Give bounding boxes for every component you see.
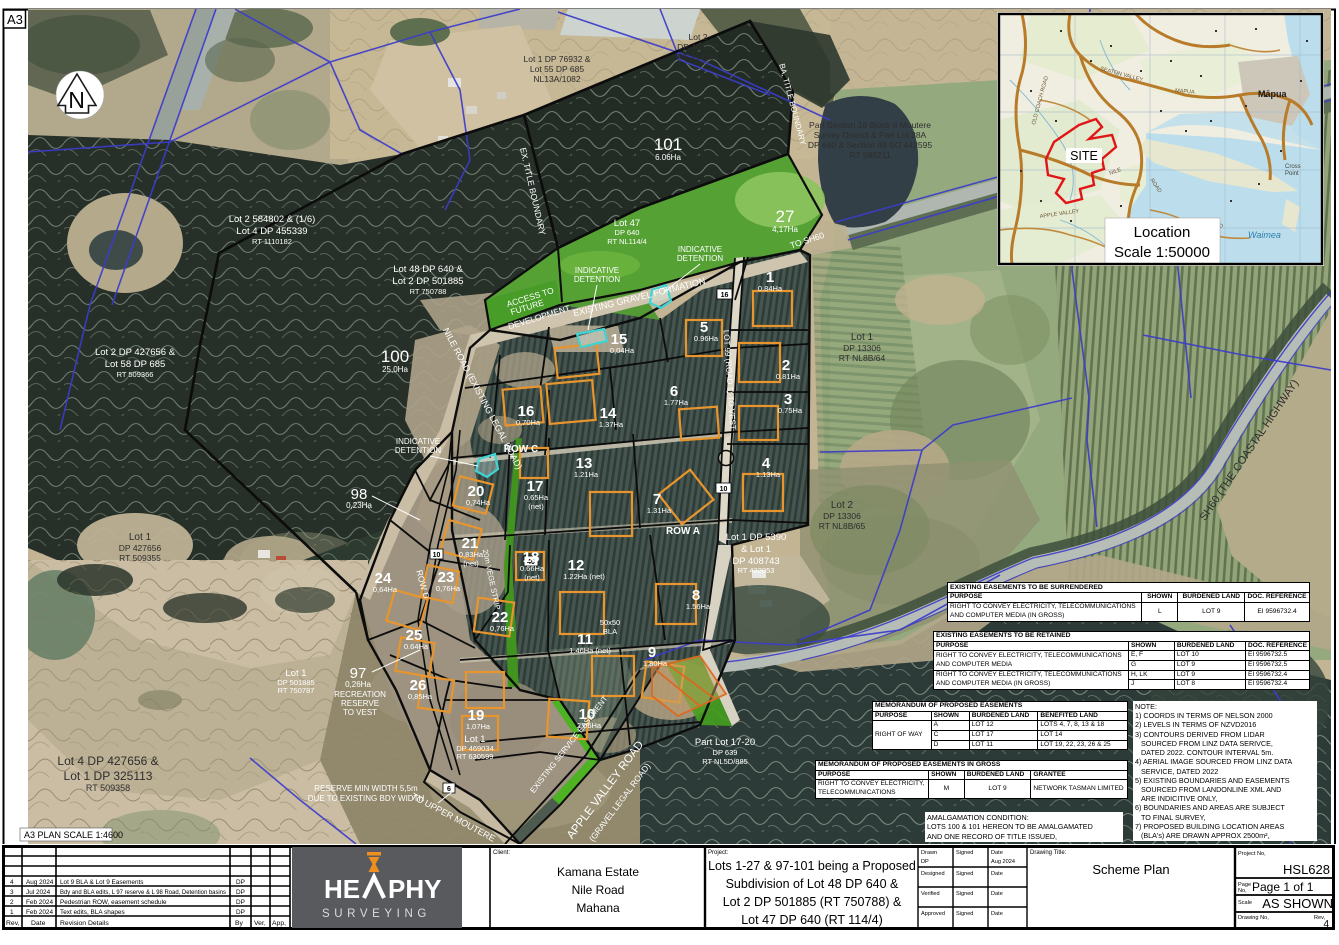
svg-text:RT NL5D/885: RT NL5D/885 (702, 757, 748, 766)
svg-text:2: 2 (10, 899, 14, 906)
svg-text:Approved: Approved (921, 911, 945, 917)
svg-text:Signed: Signed (956, 871, 973, 877)
svg-text:Scheme Plan: Scheme Plan (1092, 862, 1169, 877)
svg-text:RT 509366: RT 509366 (117, 370, 154, 379)
svg-text:RT 588211: RT 588211 (849, 150, 890, 160)
svg-text:6: 6 (447, 786, 451, 793)
svg-text:Text edits, BLA shapes: Text edits, BLA shapes (60, 909, 125, 916)
svg-text:Part Lot 17-20: Part Lot 17-20 (695, 737, 755, 748)
svg-text:RT 509358: RT 509358 (86, 783, 130, 793)
svg-text:0,26Ha: 0,26Ha (345, 680, 371, 689)
svg-text:SURVEYING: SURVEYING (322, 908, 431, 920)
svg-text:Aug 2024: Aug 2024 (991, 859, 1015, 865)
svg-text:By: By (235, 920, 244, 927)
svg-text:DP: DP (236, 889, 245, 896)
svg-text:Lot 4 DP 455339: Lot 4 DP 455339 (236, 226, 307, 237)
svg-text:10: 10 (720, 486, 728, 493)
svg-text:PHY: PHY (388, 874, 441, 904)
svg-text:1.46Ha (net): 1.46Ha (net) (569, 646, 611, 655)
svg-text:1,07Ha: 1,07Ha (466, 722, 491, 731)
svg-text:Lot 2 DP 427656 &: Lot 2 DP 427656 & (95, 347, 176, 358)
svg-text:6.06Ha: 6.06Ha (655, 153, 681, 162)
svg-text:Mahana: Mahana (576, 901, 620, 915)
svg-text:DP 13306: DP 13306 (843, 343, 881, 353)
svg-text:Designed: Designed (921, 871, 945, 877)
svg-text:Subdivision of Lot 48 DP 640 &: Subdivision of Lot 48 DP 640 & (726, 877, 899, 891)
svg-text:In: In (1330, 230, 1338, 240)
svg-text:1.37Ha: 1.37Ha (599, 420, 624, 429)
svg-text:Signed: Signed (956, 911, 973, 917)
svg-text:Verified: Verified (921, 891, 940, 897)
svg-text:0,85Ha: 0,85Ha (408, 692, 433, 701)
svg-text:SITE: SITE (1070, 149, 1098, 163)
svg-text:RT 432053: RT 432053 (738, 566, 775, 575)
svg-text:RESERVE MIN WIDTH 5,5m: RESERVE MIN WIDTH 5,5m (314, 784, 418, 793)
svg-text:0,04Ha: 0,04Ha (610, 346, 635, 355)
svg-text:100: 100 (381, 347, 409, 366)
svg-text:27: 27 (776, 207, 795, 226)
svg-text:ROW C: ROW C (504, 444, 538, 455)
svg-text:DETENTION: DETENTION (677, 254, 723, 263)
svg-text:HE: HE (324, 874, 360, 904)
svg-text:4: 4 (10, 879, 14, 886)
svg-text:RT 630599: RT 630599 (457, 752, 494, 761)
svg-text:Project:: Project: (708, 850, 729, 856)
svg-text:Lot 4 DP 427656 &: Lot 4 DP 427656 & (57, 754, 158, 768)
svg-text:Feb 2024: Feb 2024 (26, 909, 53, 916)
svg-text:Project No,: Project No, (1238, 851, 1266, 857)
svg-text:1.22Ha (net): 1.22Ha (net) (563, 572, 605, 581)
svg-text:Date: Date (31, 920, 46, 927)
svg-text:0,76Ha: 0,76Ha (436, 584, 461, 593)
svg-text:Waimea: Waimea (1248, 230, 1281, 240)
svg-text:& Lot 1: & Lot 1 (741, 544, 771, 555)
svg-text:Part Section 16 Block II Moute: Part Section 16 Block II Moutere (809, 120, 931, 130)
svg-text:DP 427656: DP 427656 (119, 543, 162, 553)
svg-text:Bdy and BLA edits, L 97 reserv: Bdy and BLA edits, L 97 reserve & L 98 R… (60, 889, 226, 896)
svg-text:Aug 2024: Aug 2024 (26, 879, 54, 886)
svg-text:Signed: Signed (956, 891, 973, 897)
svg-text:Lot 9 BLA & Lot 9 Easements: Lot 9 BLA & Lot 9 Easements (60, 879, 144, 886)
svg-text:1.31Ha: 1.31Ha (647, 506, 672, 515)
svg-text:No,: No, (1238, 888, 1247, 894)
svg-text:0.66Ha: 0.66Ha (520, 564, 545, 573)
svg-text:Rev,: Rev, (6, 920, 20, 927)
svg-text:0,70Ha: 0,70Ha (516, 418, 541, 427)
svg-text:DP 404110: DP 404110 (677, 42, 719, 52)
svg-text:16: 16 (721, 292, 729, 299)
svg-text:INDICATIVE: INDICATIVE (396, 437, 440, 446)
svg-text:Lot 2 DP 501885 (RT 750788) &: Lot 2 DP 501885 (RT 750788) & (723, 895, 902, 909)
svg-text:Lot 58 DP 685: Lot 58 DP 685 (105, 359, 166, 370)
svg-text:1: 1 (10, 909, 14, 916)
svg-text:DP 13306: DP 13306 (823, 511, 861, 521)
svg-text:0,76Ha: 0,76Ha (490, 624, 515, 633)
svg-text:0.75Ha: 0.75Ha (778, 406, 803, 415)
svg-text:RT NL114/4: RT NL114/4 (607, 237, 647, 246)
svg-text:1.13Ha: 1.13Ha (756, 470, 781, 479)
svg-text:Revision Details: Revision Details (60, 920, 109, 927)
svg-text:1.77Ha: 1.77Ha (664, 398, 689, 407)
svg-text:Nile Road: Nile Road (572, 883, 625, 897)
svg-text:Location: Location (1134, 224, 1191, 241)
svg-text:RT 1110182: RT 1110182 (252, 237, 292, 246)
svg-text:NL13A/1082: NL13A/1082 (533, 74, 581, 84)
svg-text:RT 750788: RT 750788 (410, 287, 447, 296)
svg-text:0.96Ha: 0.96Ha (694, 334, 719, 343)
svg-text:Jul 2024: Jul 2024 (26, 889, 51, 896)
svg-text:Lot 47 DP 640 (RT 114/4): Lot 47 DP 640 (RT 114/4) (741, 913, 883, 927)
svg-text:Lot 2: Lot 2 (831, 500, 854, 511)
svg-text:RECREATION: RECREATION (334, 690, 386, 699)
svg-text:RT 414184: RT 414184 (677, 52, 719, 62)
svg-text:Survey District & Part Lot 38A: Survey District & Part Lot 38A (814, 130, 927, 140)
svg-text:A3: A3 (7, 12, 23, 27)
svg-text:N: N (68, 87, 85, 113)
svg-text:Date: Date (991, 911, 1003, 917)
svg-text:0,64Ha: 0,64Ha (373, 585, 398, 594)
svg-text:DP 640 & Section 49 SO 442595: DP 640 & Section 49 SO 442595 (808, 140, 932, 150)
svg-text:Lot 1 DP 5390: Lot 1 DP 5390 (726, 532, 787, 543)
svg-text:Ver,: Ver, (254, 920, 266, 927)
svg-text:DP: DP (236, 909, 245, 916)
svg-text:Date: Date (991, 891, 1003, 897)
svg-text:0.84Ha: 0.84Ha (758, 284, 783, 293)
svg-text:0,74Ha: 0,74Ha (466, 498, 491, 507)
svg-text:Lot 55 DP 685: Lot 55 DP 685 (530, 64, 584, 74)
svg-text:0.65Ha: 0.65Ha (524, 493, 549, 502)
svg-text:Lot 48 DP 640 &: Lot 48 DP 640 & (393, 264, 463, 275)
svg-text:TO VEST: TO VEST (343, 708, 377, 717)
svg-text:A3 PLAN SCALE 1:4600: A3 PLAN SCALE 1:4600 (24, 830, 123, 840)
svg-text:0.81Ha: 0.81Ha (776, 372, 801, 381)
svg-text:(net): (net) (524, 573, 540, 582)
svg-text:Lot 1 DP 76932 &: Lot 1 DP 76932 & (524, 54, 591, 64)
svg-text:App,: App, (272, 920, 286, 927)
svg-text:Scale 1:50000: Scale 1:50000 (1114, 244, 1210, 261)
svg-text:4,17Ha: 4,17Ha (772, 225, 798, 234)
svg-text:DP: DP (236, 899, 245, 906)
svg-text:Point: Point (1285, 171, 1299, 177)
svg-text:BLA: BLA (603, 627, 617, 636)
svg-text:Feb 2024: Feb 2024 (26, 899, 53, 906)
svg-text:RT 509355: RT 509355 (119, 553, 161, 563)
svg-text:25,0Ha: 25,0Ha (382, 365, 408, 374)
svg-text:AS SHOWN: AS SHOWN (1262, 896, 1333, 911)
svg-text:(net): (net) (463, 559, 479, 568)
svg-text:(net): (net) (528, 502, 544, 511)
svg-text:Lots 1-27 & 97-101 being a Pro: Lots 1-27 & 97-101 being a Proposed (708, 859, 916, 873)
svg-text:Lot 2 584802 & (1/6): Lot 2 584802 & (1/6) (229, 214, 316, 225)
svg-text:DUE TO EXISTING BDY WIDTH: DUE TO EXISTING BDY WIDTH (308, 794, 425, 803)
svg-text:INDICATIVE: INDICATIVE (575, 266, 619, 275)
svg-text:Drawing No,: Drawing No, (1238, 915, 1269, 921)
svg-text:Date: Date (991, 871, 1003, 877)
svg-text:3: 3 (10, 889, 14, 896)
svg-text:Lot 1: Lot 1 (129, 532, 152, 543)
svg-text:Drawing Title:: Drawing Title: (1030, 850, 1067, 856)
svg-text:DETENTION: DETENTION (395, 446, 441, 455)
svg-text:Lot 1 DP 325113: Lot 1 DP 325113 (64, 769, 153, 783)
svg-text:0,23Ha: 0,23Ha (346, 501, 372, 510)
svg-text:Cross: Cross (1285, 164, 1301, 170)
svg-text:ROW A: ROW A (666, 526, 700, 537)
svg-text:Client:: Client: (493, 850, 510, 856)
svg-text:Lot 2 DP 501885: Lot 2 DP 501885 (392, 276, 463, 287)
svg-text:Lot 1: Lot 1 (851, 332, 874, 343)
svg-text:DETENTION: DETENTION (574, 275, 620, 284)
svg-text:RESERVE: RESERVE (341, 699, 379, 708)
svg-text:101: 101 (654, 135, 682, 154)
svg-text:Signed: Signed (956, 850, 973, 856)
svg-text:Drawn: Drawn (921, 850, 937, 856)
svg-text:RT NL8B/65: RT NL8B/65 (819, 521, 866, 531)
svg-text:DP: DP (921, 859, 929, 865)
svg-text:0,83Ha: 0,83Ha (459, 550, 484, 559)
svg-text:1.56Ha: 1.56Ha (686, 602, 711, 611)
svg-text:DP 639: DP 639 (713, 748, 738, 757)
svg-text:0.64Ha: 0.64Ha (404, 642, 429, 651)
svg-text:RT 750787: RT 750787 (278, 686, 315, 695)
svg-text:1.80Ha: 1.80Ha (643, 659, 668, 668)
svg-text:Kamana Estate: Kamana Estate (557, 865, 639, 879)
svg-text:DP 640: DP 640 (615, 228, 640, 237)
svg-text:HSL628: HSL628 (1283, 862, 1330, 877)
svg-text:INDICATIVE: INDICATIVE (678, 245, 722, 254)
svg-text:Date: Date (991, 850, 1003, 856)
svg-text:10: 10 (433, 552, 441, 559)
svg-text:4: 4 (1323, 919, 1329, 930)
svg-text:Page 1 of 1: Page 1 of 1 (1252, 880, 1314, 894)
svg-text:1.21Ha: 1.21Ha (574, 470, 599, 479)
svg-text:Māpua: Māpua (1258, 89, 1287, 99)
svg-text:RT NL8B/64: RT NL8B/64 (839, 353, 886, 363)
svg-text:Scale: Scale (1238, 900, 1252, 906)
svg-text:DP: DP (236, 879, 245, 886)
svg-text:Lot 2: Lot 2 (689, 32, 708, 42)
svg-text:Pedestrian ROW, easement sched: Pedestrian ROW, easement schedule (60, 899, 167, 906)
svg-text:50x50: 50x50 (600, 618, 620, 627)
